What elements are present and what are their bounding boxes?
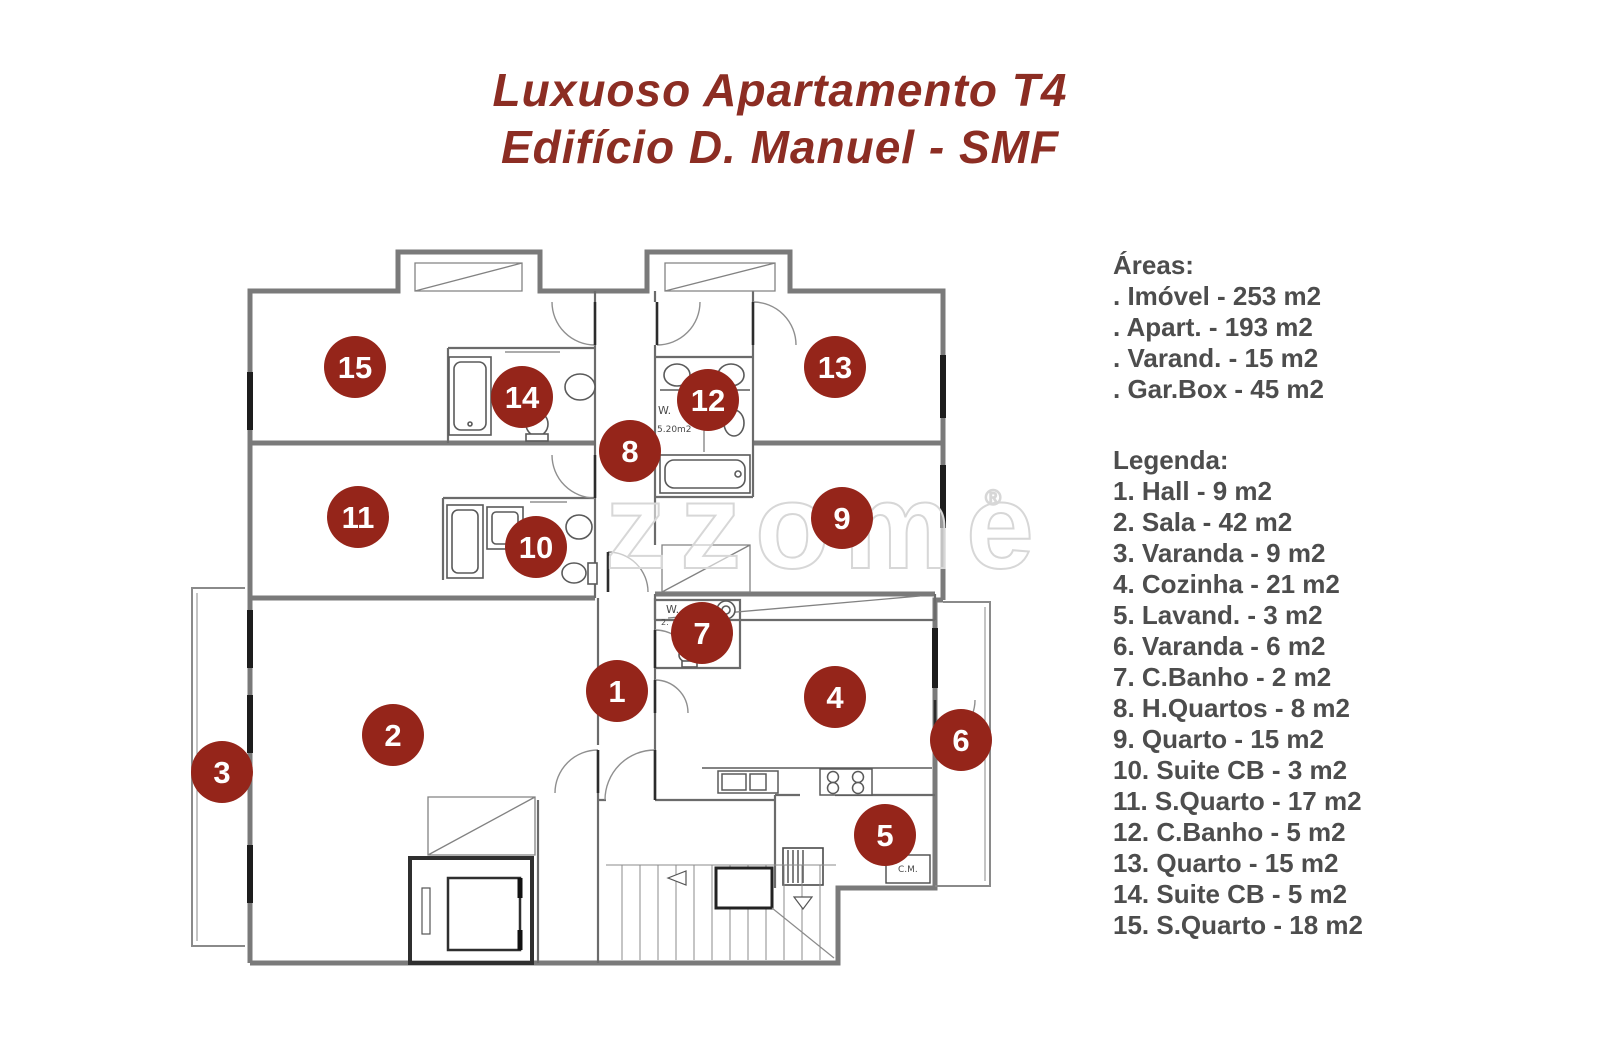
text-line: 3. Varanda - 9 m2 — [1113, 538, 1583, 569]
plan-text-label: 2. — [661, 618, 669, 627]
text-line: 4. Cozinha - 21 m2 — [1113, 569, 1583, 600]
marker-number: 5 — [876, 818, 893, 853]
text-line: . Gar.Box - 45 m2 — [1113, 374, 1583, 405]
room-marker-5: 5 — [854, 804, 916, 866]
text-line: 10. Suite CB - 3 m2 — [1113, 755, 1583, 786]
marker-number: 10 — [519, 530, 553, 565]
text-line: . Apart. - 193 m2 — [1113, 312, 1583, 343]
stairs — [606, 865, 836, 960]
marker-number: 6 — [952, 723, 969, 758]
flyer-page: Luxuoso Apartamento T4 Edifício D. Manue… — [0, 0, 1600, 1062]
room-marker-3: 3 — [191, 741, 253, 803]
svg-text:®: ® — [985, 485, 1001, 510]
marker-number: 12 — [691, 383, 725, 418]
text-line: . Varand. - 15 m2 — [1113, 343, 1583, 374]
room-marker-6: 6 — [930, 709, 992, 771]
room-marker-12: 12 — [677, 369, 739, 431]
legend-list: 1. Hall - 9 m22. Sala - 42 m23. Varanda … — [1113, 476, 1583, 941]
window-bars — [250, 355, 943, 903]
marker-number: 2 — [384, 718, 401, 753]
marker-number: 11 — [342, 500, 375, 535]
text-line: 15. S.Quarto - 18 m2 — [1113, 910, 1583, 941]
marker-number: 4 — [826, 680, 844, 715]
marker-number: 8 — [621, 434, 638, 469]
legend-heading: Legenda: — [1113, 445, 1583, 476]
text-line: . Imóvel - 253 m2 — [1113, 281, 1583, 312]
text-line: 8. H.Quartos - 8 m2 — [1113, 693, 1583, 724]
marker-number: 14 — [505, 380, 540, 415]
marker-number: 3 — [213, 755, 230, 790]
marker-number: 9 — [833, 501, 850, 536]
room-marker-9: 9 — [811, 487, 873, 549]
room-marker-1: 1 — [586, 660, 648, 722]
text-line: 9. Quarto - 15 m2 — [1113, 724, 1583, 755]
marker-number: 7 — [693, 616, 710, 651]
text-line: 1. Hall - 9 m2 — [1113, 476, 1583, 507]
areas-list: . Imóvel - 253 m2. Apart. - 193 m2. Vara… — [1113, 281, 1583, 405]
text-line: 14. Suite CB - 5 m2 — [1113, 879, 1583, 910]
marker-number: 15 — [338, 350, 372, 385]
plan-text-label: C.M. — [898, 865, 918, 875]
text-line: 2. Sala - 42 m2 — [1113, 507, 1583, 538]
marker-number: 1 — [608, 674, 625, 709]
room-marker-11: 11 — [327, 486, 389, 548]
room-marker-7: 7 — [671, 602, 733, 664]
room-marker-15: 15 — [324, 336, 386, 398]
room-marker-4: 4 — [804, 666, 866, 728]
text-line: 11. S.Quarto - 17 m2 — [1113, 786, 1583, 817]
kitchen-fixtures — [702, 768, 932, 795]
room-marker-13: 13 — [804, 336, 866, 398]
plan-text-label: 5.20m2 — [657, 425, 692, 435]
plan-text-label: W. — [658, 404, 671, 417]
room-marker-8: 8 — [599, 420, 661, 482]
plan-text-label: W. — [666, 603, 679, 616]
text-line: 7. C.Banho - 2 m2 — [1113, 662, 1583, 693]
info-panel: Áreas: . Imóvel - 253 m2. Apart. - 193 m… — [1113, 250, 1583, 941]
marker-number: 13 — [818, 350, 852, 385]
text-line: 6. Varanda - 6 m2 — [1113, 631, 1583, 662]
room-marker-2: 2 — [362, 704, 424, 766]
room-marker-14: 14 — [491, 366, 553, 428]
text-line: 12. C.Banho - 5 m2 — [1113, 817, 1583, 848]
elevator — [410, 858, 532, 963]
room-marker-10: 10 — [505, 516, 567, 578]
text-line: 5. Lavand. - 3 m2 — [1113, 600, 1583, 631]
areas-heading: Áreas: — [1113, 250, 1583, 281]
text-line: 13. Quarto - 15 m2 — [1113, 848, 1583, 879]
